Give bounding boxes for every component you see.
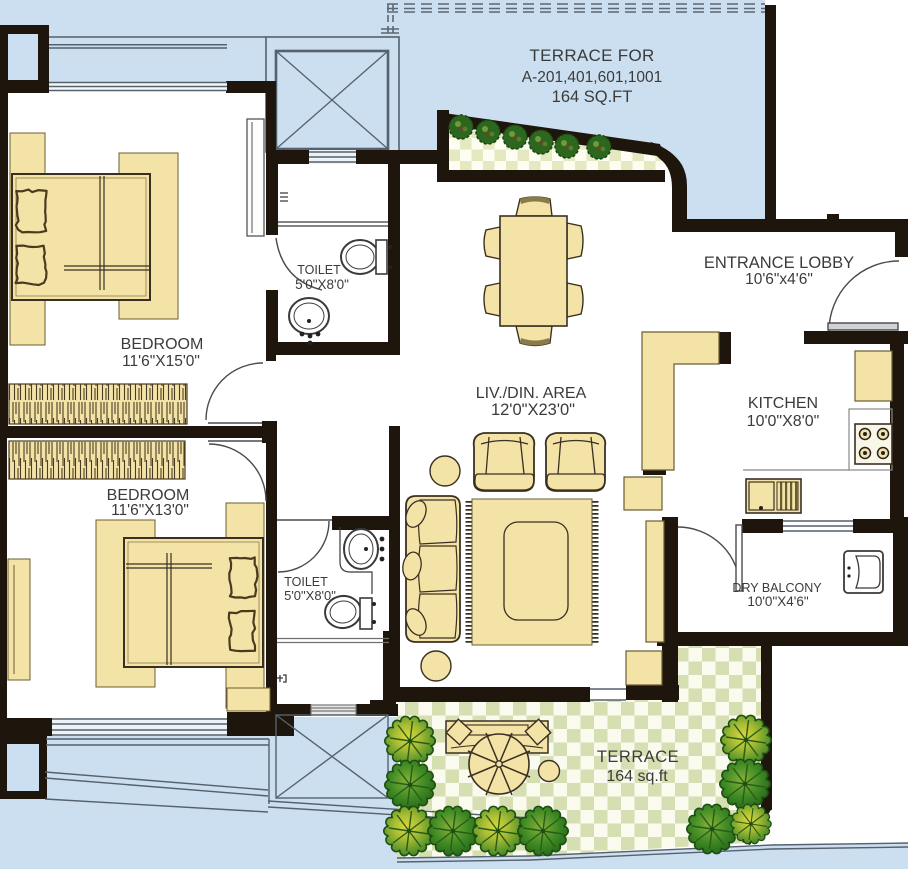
svg-text:BEDROOM: BEDROOM: [121, 336, 204, 353]
svg-text:TOILET: TOILET: [284, 575, 328, 589]
svg-text:164 sq.ft: 164 sq.ft: [606, 768, 668, 785]
svg-text:11'6"X15'0": 11'6"X15'0": [122, 353, 200, 370]
svg-text:10'0"X4'6": 10'0"X4'6": [747, 594, 808, 609]
svg-text:TERRACE: TERRACE: [597, 748, 679, 766]
svg-text:DRY BALCONY: DRY BALCONY: [732, 581, 822, 595]
svg-text:10'0"X8'0": 10'0"X8'0": [747, 413, 820, 430]
svg-text:164 SQ.FT: 164 SQ.FT: [552, 88, 633, 106]
svg-text:A-201,401,601,1001: A-201,401,601,1001: [522, 69, 662, 86]
svg-text:LIV./DIN. AREA: LIV./DIN. AREA: [476, 385, 587, 402]
svg-text:5'0"X8'0": 5'0"X8'0": [284, 588, 336, 603]
svg-text:ENTRANCE LOBBY: ENTRANCE LOBBY: [704, 254, 854, 272]
svg-text:5'0"X8'0": 5'0"X8'0": [295, 277, 349, 292]
svg-text:TOILET: TOILET: [297, 263, 341, 277]
svg-text:TERRACE FOR: TERRACE FOR: [529, 46, 654, 65]
svg-text:11'6"X13'0": 11'6"X13'0": [111, 502, 189, 519]
svg-text:10'6"x4'6": 10'6"x4'6": [745, 271, 813, 288]
svg-text:KITCHEN: KITCHEN: [748, 395, 818, 412]
svg-text:12'0"X23'0": 12'0"X23'0": [491, 401, 575, 419]
